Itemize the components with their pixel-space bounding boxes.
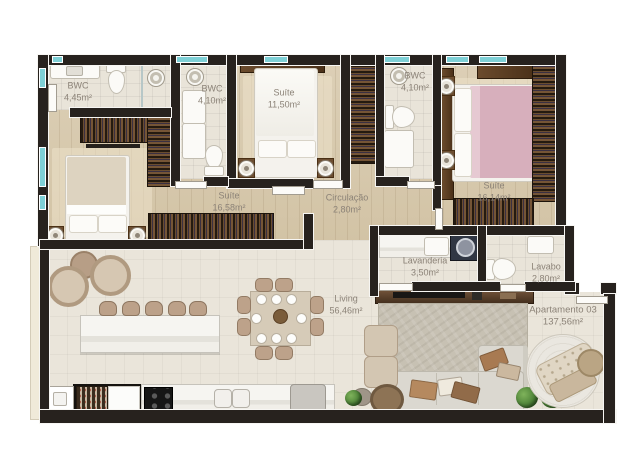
wall-segment: [565, 226, 574, 288]
wall-segment: [433, 55, 441, 186]
lamp-icon: [439, 79, 454, 94]
sink-basin: [66, 66, 83, 76]
room-label-lavabo: Lavabo 2,80m²: [531, 261, 561, 284]
washer-drum: [456, 238, 475, 257]
wall-segment: [227, 55, 236, 188]
hall-wardrobe: [348, 58, 378, 164]
plate: [251, 313, 262, 324]
window: [40, 148, 45, 186]
room-area: 4,10m²: [401, 82, 429, 94]
room-area: 56,46m²: [329, 305, 362, 317]
dining-chair: [255, 278, 273, 292]
wall-segment: [204, 177, 228, 186]
room-name: BWC: [64, 80, 92, 92]
decor-object: [472, 292, 482, 300]
wall-segment: [304, 214, 313, 249]
centerpiece: [273, 309, 288, 324]
bath-cabinet: [182, 123, 206, 159]
unit-name: Apartamento 03: [529, 305, 597, 317]
wall-segment: [376, 177, 409, 186]
pillow: [98, 215, 127, 233]
door-leaf: [379, 283, 413, 291]
kitchen-island: [80, 315, 220, 353]
door-leaf: [272, 186, 305, 195]
cooktop: [144, 387, 173, 410]
wall-segment: [412, 282, 500, 291]
wall-segment: [604, 294, 615, 423]
window: [53, 57, 62, 62]
room-label-suite-1614: Suíte 16,14m²: [477, 180, 510, 203]
sink: [527, 236, 554, 254]
plate: [296, 313, 307, 324]
door-leaf: [435, 208, 443, 230]
decor-object: [500, 293, 516, 299]
armchair: [364, 356, 398, 388]
room-area: 2,80m²: [531, 273, 561, 285]
room-label-suite-1150: Suíte 11,50m²: [268, 87, 300, 110]
dresser: [477, 63, 534, 79]
tv: [86, 144, 140, 148]
sink-bowl: [214, 389, 232, 408]
plate: [286, 333, 297, 344]
room-name: BWC: [198, 83, 226, 95]
dining-chair: [255, 346, 273, 360]
bar-stool: [122, 301, 140, 316]
plate: [271, 294, 282, 305]
refrigerator: [108, 386, 140, 411]
window: [385, 57, 409, 62]
window: [265, 57, 287, 62]
room-area: 3,50m²: [403, 267, 448, 279]
room-label-bwc-410-right: BWC 4,10m²: [401, 70, 429, 93]
wall-segment: [40, 246, 49, 423]
bar-stool: [145, 301, 163, 316]
round-armchair: [48, 266, 89, 307]
dining-chair: [237, 296, 251, 314]
dining-chair: [310, 296, 324, 314]
door-leaf: [48, 84, 57, 112]
wine-cellar: [76, 386, 108, 411]
room-name: Lavanderia: [403, 255, 448, 267]
shower-box: [384, 130, 414, 168]
wall-segment: [601, 283, 616, 294]
room-name: Suíte: [212, 190, 245, 202]
lamp-icon: [239, 161, 254, 176]
room-label-bwc-445: BWC 4,45m²: [64, 80, 92, 103]
floor-plan: BWC 4,45m² BWC 4,10m² Suíte 11,50m² BWC …: [0, 0, 624, 468]
bed-blanket: [67, 157, 126, 207]
tv: [393, 292, 465, 298]
shower-glass: [141, 64, 143, 108]
door-leaf: [407, 181, 435, 189]
wall-segment: [370, 226, 378, 296]
pillow: [258, 140, 287, 158]
toilet-tank: [204, 166, 224, 176]
room-area: 16,14m²: [477, 192, 510, 204]
plant: [345, 390, 362, 406]
bed-blanket-pink: [470, 86, 534, 178]
room-name: Suíte: [268, 87, 300, 99]
wall-segment: [171, 55, 180, 186]
door-leaf: [500, 284, 526, 292]
room-label-living: Living 56,46m²: [329, 293, 362, 316]
room-area: 11,50m²: [268, 99, 300, 111]
wall-segment: [376, 55, 384, 186]
window: [177, 57, 207, 62]
wall-segment: [40, 240, 313, 249]
wall-segment: [433, 186, 441, 210]
window: [40, 69, 45, 87]
plate: [271, 333, 282, 344]
armchair: [364, 325, 398, 357]
sink-bowl: [232, 389, 250, 408]
window: [40, 196, 45, 209]
dining-chair: [237, 318, 251, 336]
room-area: 16,58m²: [212, 202, 245, 214]
room-name: BWC: [401, 70, 429, 82]
room-area: 2,80m²: [326, 204, 369, 216]
wall-segment: [40, 410, 616, 423]
bed-sheet-fold: [67, 205, 126, 214]
dining-chair: [310, 318, 324, 336]
pillow: [287, 140, 316, 158]
wardrobe: [80, 113, 149, 143]
wardrobe: [147, 113, 173, 187]
entry-door-leaf: [576, 296, 608, 304]
wardrobe: [532, 62, 558, 202]
wall-segment: [341, 55, 350, 188]
room-label-circulacao: Circulação 2,80m²: [326, 192, 369, 215]
throw-pillow: [409, 379, 438, 401]
lamp-icon: [318, 161, 333, 176]
dining-chair: [275, 278, 293, 292]
plate: [256, 294, 267, 305]
room-name: Circulação: [326, 192, 369, 204]
room-area: 4,10m²: [198, 95, 226, 107]
unit-label: Apartamento 03 137,56m²: [529, 305, 597, 330]
shower-head-icon: [148, 70, 164, 86]
lamp-icon: [439, 153, 454, 168]
wall-segment: [478, 226, 486, 290]
window: [447, 57, 468, 62]
round-pillow: [577, 349, 605, 377]
bar-stool: [168, 301, 186, 316]
room-label-suite-1658: Suíte 16,58m²: [212, 190, 245, 213]
plate: [286, 294, 297, 305]
room-name: Lavabo: [531, 261, 561, 273]
room-name: Living: [329, 293, 362, 305]
wall-segment: [370, 226, 574, 235]
door-leaf: [313, 180, 343, 189]
pillow: [454, 88, 472, 132]
wall-segment: [556, 55, 566, 235]
room-name: Suíte: [477, 180, 510, 192]
dining-chair: [275, 346, 293, 360]
laundry-sink: [424, 237, 449, 256]
pillow: [69, 215, 98, 233]
room-label-lavanderia: Lavanderia 3,50m²: [403, 255, 448, 278]
counter-appliance: [290, 384, 326, 412]
round-armchair: [90, 255, 131, 296]
wall-segment: [70, 108, 171, 117]
utility-fixture: [53, 392, 67, 406]
bar-stool: [99, 301, 117, 316]
room-area: 4,45m²: [64, 92, 92, 104]
unit-area: 137,56m²: [529, 317, 597, 329]
window: [480, 57, 506, 62]
pillow: [454, 133, 472, 177]
room-label-bwc-410-left: BWC 4,10m²: [198, 83, 226, 106]
plate: [256, 333, 267, 344]
bar-stool: [189, 301, 207, 316]
door-leaf: [175, 181, 207, 189]
